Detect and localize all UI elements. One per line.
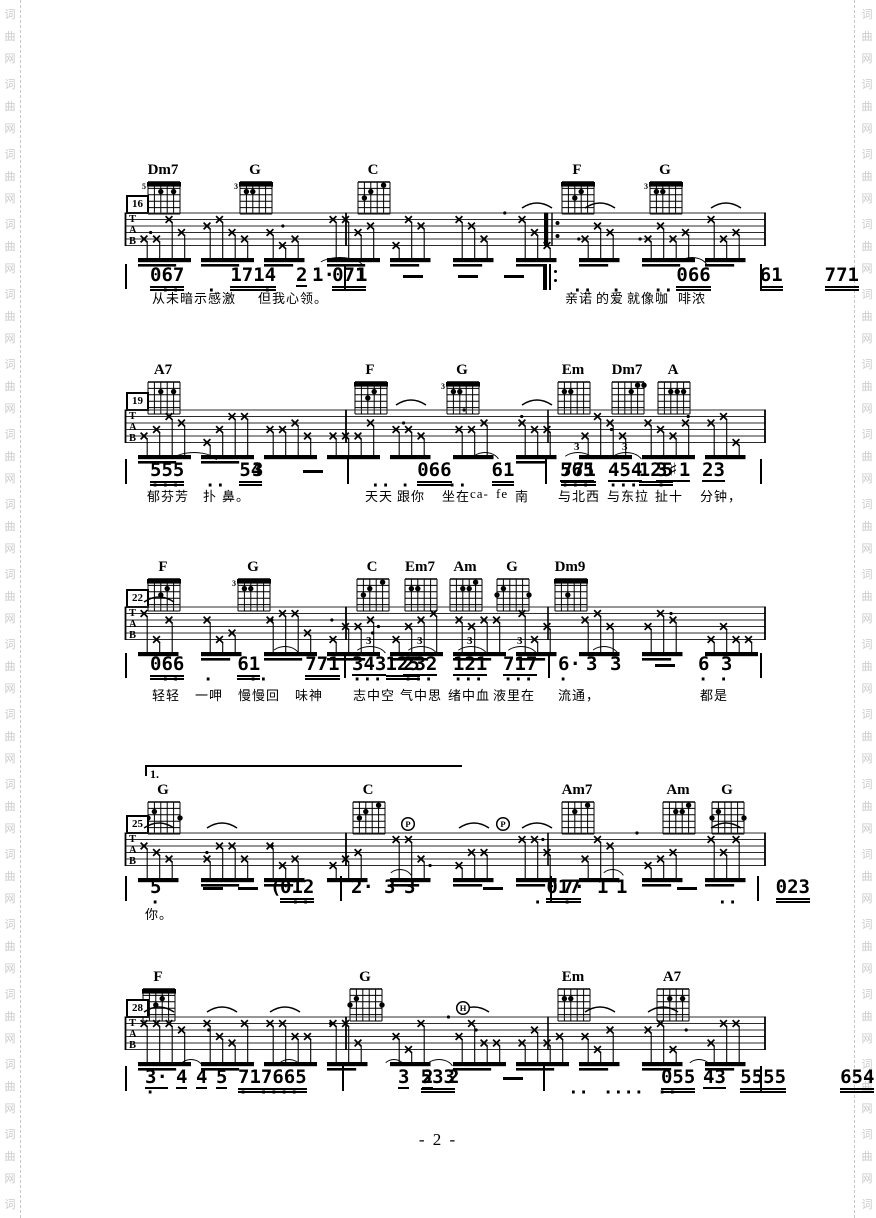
watermark-text: 网 <box>3 750 17 766</box>
melody-note: 023 <box>776 876 810 900</box>
watermark-text: 曲 <box>860 798 874 814</box>
lyric-run: 一呷 <box>195 685 223 704</box>
lyric-run: 跟你 <box>397 486 425 505</box>
repeat-dot <box>554 270 557 273</box>
repeat-dot <box>554 279 557 282</box>
melody-dash <box>203 887 223 890</box>
watermark-text: 曲 <box>3 1078 17 1094</box>
chord-label: Em <box>550 362 596 379</box>
watermark-text: 网 <box>860 260 874 276</box>
chord-label: A <box>650 362 696 379</box>
watermark-text: 词 <box>3 846 17 862</box>
lyric-run: 扯十 <box>655 486 683 505</box>
chord-label: G <box>439 362 485 379</box>
watermark-text: 曲 <box>860 98 874 114</box>
lyric-run: 亲诺 <box>565 288 593 307</box>
watermark-text: 词 <box>860 76 874 92</box>
lyric-run: 液里在 <box>493 685 535 704</box>
repeat-sign <box>543 264 559 290</box>
chord-label: G <box>489 559 535 576</box>
svg-text:A: A <box>129 619 137 630</box>
melody-barline <box>347 459 349 484</box>
melody-barline <box>548 653 550 678</box>
watermark-text: 曲 <box>3 238 17 254</box>
watermark-text: 网 <box>860 750 874 766</box>
melody-octave-dots: ·· <box>248 675 268 685</box>
watermark-text: 网 <box>860 400 874 416</box>
lyric-run: 的爱 <box>596 288 624 307</box>
watermark-text: 网 <box>3 1170 17 1186</box>
watermark-text: 网 <box>3 400 17 416</box>
sheet-music-page: 词曲网词曲网词曲网词曲网词曲网词曲网词曲网词曲网词曲网词曲网词曲网词曲网词曲网词… <box>0 0 876 1218</box>
watermark-text: 网 <box>3 960 17 976</box>
watermark-text: 词 <box>3 706 17 722</box>
chord-label: G <box>140 782 186 799</box>
volta-label: 1. <box>150 767 159 782</box>
watermark-text: 网 <box>3 470 17 486</box>
watermark-text: 曲 <box>3 518 17 534</box>
svg-text:B: B <box>129 236 136 247</box>
chord-label: Dm7 <box>604 362 650 379</box>
chord-label: G <box>642 162 688 179</box>
tab-staff-graphic: TAB <box>124 195 772 289</box>
watermark-text: 曲 <box>860 658 874 674</box>
lyric-run: 分钟， <box>700 486 742 505</box>
melody-barline <box>125 459 127 484</box>
volta-bracket: 1. <box>145 765 462 776</box>
watermark-text: 词 <box>3 776 17 792</box>
watermark-text: 词 <box>860 356 874 372</box>
lyric-run: 你。 <box>145 904 173 923</box>
watermark-text: 网 <box>860 190 874 206</box>
tab-staff-graphic: TAB <box>124 589 772 683</box>
watermark-text: 网 <box>3 1030 17 1046</box>
watermark-text: 曲 <box>860 378 874 394</box>
melody-dash <box>483 887 503 890</box>
watermark-text: 曲 <box>860 238 874 254</box>
chord-label: G <box>230 559 276 576</box>
watermark-text: 网 <box>3 50 17 66</box>
watermark-text: 词 <box>860 986 874 1002</box>
melody-octave-dots: ·· <box>707 898 738 908</box>
lyric-run: 与东拉 <box>607 486 649 505</box>
watermark-text: 词 <box>860 216 874 232</box>
svg-text:A: A <box>129 225 137 236</box>
chord-label: Em7 <box>397 559 443 576</box>
lyric-run: 鼻。 <box>222 486 250 505</box>
svg-text:B: B <box>129 856 136 867</box>
melody-octave-dots: · <box>562 898 572 908</box>
lyric-run: 郁芬芳 <box>147 486 189 505</box>
melody-barline <box>760 1066 762 1091</box>
watermark-text: 网 <box>3 260 17 276</box>
chord-label: G <box>704 782 750 799</box>
watermark-text: 词 <box>3 426 17 442</box>
watermark-text: 曲 <box>3 798 17 814</box>
melody-octave-dots: · ···· <box>238 1088 299 1098</box>
watermark-text: 曲 <box>3 728 17 744</box>
melody-barline <box>125 876 127 901</box>
chord-label: Am <box>655 782 701 799</box>
lyric-run: 志中空 <box>353 685 395 704</box>
watermark-text: 网 <box>3 820 17 836</box>
watermark-text: 网 <box>3 540 17 556</box>
lyric-run: 啡浓 <box>678 288 706 307</box>
lyric-run: 气中思 <box>400 685 442 704</box>
watermark-text: 网 <box>860 1170 874 1186</box>
watermark-text: 曲 <box>860 868 874 884</box>
melody-note: 3 <box>404 877 415 897</box>
watermark-right-dashed-line <box>854 0 855 1218</box>
svg-text:P: P <box>405 819 410 829</box>
lyric-run: 南 <box>515 486 529 505</box>
melody-barline <box>545 459 547 484</box>
melody-note: 654 <box>840 1066 874 1090</box>
watermark-text: 词 <box>860 496 874 512</box>
melody-barline <box>760 653 762 678</box>
melody-barline <box>342 1066 344 1091</box>
watermark-text: 网 <box>3 610 17 626</box>
melody-note: 771 <box>305 653 339 677</box>
melody-barline <box>125 1066 127 1091</box>
chord-label: F <box>347 362 393 379</box>
tab-staff-graphic: TABPP <box>124 815 772 909</box>
melody-barline <box>125 264 127 289</box>
watermark-text: 网 <box>860 120 874 136</box>
triplet-number: 3 <box>366 635 372 647</box>
chord-label: Dm9 <box>547 559 593 576</box>
triplet-number: 3 <box>417 635 423 647</box>
melody-note: 4 <box>196 1067 207 1089</box>
watermark-text: 曲 <box>860 448 874 464</box>
melody-note: 771 <box>825 264 859 288</box>
chord-label: Em <box>550 969 596 986</box>
melody-note: 2· <box>351 877 374 897</box>
tab-staff: TABPP <box>124 815 772 909</box>
watermark-text: 词 <box>860 706 874 722</box>
melody-dash <box>403 275 423 278</box>
melody-octave-dots: · <box>558 675 568 685</box>
svg-text:T: T <box>129 608 136 619</box>
svg-text:T: T <box>129 411 136 422</box>
svg-text:T: T <box>129 1018 136 1029</box>
melody-barline <box>340 876 342 901</box>
melody-note: 2 <box>448 1067 459 1087</box>
watermark-text: 词 <box>860 6 874 22</box>
chord-label: C <box>350 162 396 179</box>
watermark-text: 网 <box>860 680 874 696</box>
melody-note: 2 <box>422 1067 433 1089</box>
melody-barline <box>760 459 762 484</box>
watermark-left-dashed-line <box>20 0 21 1218</box>
lyric-run: 慢慢回 <box>238 685 280 704</box>
watermark-text: 网 <box>3 190 17 206</box>
melody-dash <box>503 1077 523 1080</box>
watermark-text: 曲 <box>860 168 874 184</box>
lyric-run: 就像咖 <box>627 288 669 307</box>
melody-octave-dots: ·· <box>657 1088 677 1098</box>
watermark-text: 网 <box>3 680 17 696</box>
melody-dash <box>655 664 675 667</box>
watermark-text: 网 <box>860 890 874 906</box>
lyric-run: 坐在 <box>442 486 470 505</box>
triplet-number: 3 <box>517 635 523 647</box>
watermark-text: 词 <box>3 566 17 582</box>
melody-dash <box>303 470 323 473</box>
watermark-text: 词 <box>3 916 17 932</box>
chord-label: Am7 <box>554 782 600 799</box>
watermark-text: 曲 <box>3 98 17 114</box>
watermark-text: 词 <box>3 286 17 302</box>
watermark-text: 词 <box>3 356 17 372</box>
watermark-text: 词 <box>860 916 874 932</box>
watermark-text: 曲 <box>3 308 17 324</box>
melody-octave-dots: ··· <box>352 675 383 685</box>
svg-text:B: B <box>129 433 136 444</box>
melody-note: 1 <box>356 265 367 285</box>
watermark-text: 词 <box>860 846 874 862</box>
lyric-run: 但我心领。 <box>258 288 328 307</box>
melody-note: 5 <box>216 1067 227 1089</box>
chord-label: G <box>232 162 278 179</box>
watermark-text: 词 <box>3 76 17 92</box>
chord-label: C <box>349 559 395 576</box>
watermark-text: 词 <box>3 986 17 1002</box>
lyric-run: 轻轻 <box>152 685 180 704</box>
melody-octave-dots: ·· <box>558 1088 589 1098</box>
watermark-text: 曲 <box>860 308 874 324</box>
svg-text:A: A <box>129 422 137 433</box>
watermark-text: 词 <box>3 1056 17 1072</box>
chord-label: F <box>554 162 600 179</box>
lyric-run: 天天 <box>365 486 393 505</box>
svg-text:3: 3 <box>232 579 236 588</box>
lyric-run: 扑 <box>203 486 217 505</box>
chord-label: F <box>135 969 181 986</box>
lyric-run: 从未暗示感激 <box>152 288 236 307</box>
melody-dash <box>504 275 524 278</box>
melody-octave-dots: ···· <box>603 1088 644 1098</box>
melody-dash <box>458 275 478 278</box>
triplet-number: 3 <box>574 441 580 453</box>
lyric-run: 都是 <box>700 685 728 704</box>
watermark-text: 曲 <box>3 588 17 604</box>
melody-note: 5555 <box>740 1066 786 1090</box>
watermark-text: 词 <box>860 1196 874 1212</box>
melody-note: 4 <box>176 1067 187 1089</box>
watermark-text: 曲 <box>3 868 17 884</box>
svg-text:P: P <box>500 819 505 829</box>
watermark-text: 曲 <box>860 28 874 44</box>
watermark-text: 曲 <box>3 658 17 674</box>
lyric-run: ca- <box>470 486 489 502</box>
melody-note: 2 <box>296 265 307 287</box>
watermark-text: 网 <box>3 1100 17 1116</box>
chord-label: C <box>345 782 391 799</box>
svg-text:T: T <box>129 834 136 845</box>
melody-barline <box>550 876 552 901</box>
watermark-text: 曲 <box>3 168 17 184</box>
repeat-thin-bar <box>549 264 551 290</box>
svg-text:3: 3 <box>441 382 445 391</box>
melody-octave-dots: · <box>145 1088 155 1098</box>
melody-octave-dots: · <box>512 898 543 908</box>
watermark-text: 网 <box>860 50 874 66</box>
svg-text:B: B <box>129 1040 136 1051</box>
chord-label: G <box>342 969 388 986</box>
watermark-text: 网 <box>860 330 874 346</box>
svg-text:3: 3 <box>234 182 238 191</box>
watermark-text: 曲 <box>860 1008 874 1024</box>
melody-octave-dots: ··· <box>453 675 484 685</box>
repeat-thick-bar <box>543 264 547 290</box>
melody-note: 1· <box>312 265 335 285</box>
melody-barline <box>760 264 762 289</box>
watermark-text: 曲 <box>3 1008 17 1024</box>
watermark-text: 词 <box>3 1196 17 1212</box>
watermark-text: 词 <box>860 636 874 652</box>
watermark-text: 网 <box>860 470 874 486</box>
watermark-text: 词 <box>860 566 874 582</box>
watermark-text: 曲 <box>3 1148 17 1164</box>
watermark-text: 曲 <box>860 588 874 604</box>
lyric-run: fe <box>496 486 508 502</box>
melody-barline <box>543 1066 545 1091</box>
watermark-text: 网 <box>860 540 874 556</box>
melody-dash <box>677 887 697 890</box>
triplet-number: 3 <box>467 635 473 647</box>
lyric-run: 味神 <box>295 685 323 704</box>
svg-text:5: 5 <box>142 182 146 191</box>
watermark-text: 曲 <box>3 448 17 464</box>
watermark-text: 词 <box>860 286 874 302</box>
melody-note: 3 <box>384 877 395 897</box>
watermark-text: 网 <box>860 1100 874 1116</box>
svg-text:T: T <box>129 214 136 225</box>
watermark-text: 词 <box>860 426 874 442</box>
chord-label: F <box>140 559 186 576</box>
watermark-text: 词 <box>3 636 17 652</box>
lyric-run: 与北西 <box>558 486 600 505</box>
melody-octave-dots: ··· <box>503 675 534 685</box>
watermark-text: 曲 <box>3 938 17 954</box>
watermark-text: 词 <box>860 146 874 162</box>
tab-staff: TAB <box>124 195 772 289</box>
melody-note: 3 <box>610 654 621 674</box>
watermark-text: 曲 <box>860 728 874 744</box>
watermark-text: 网 <box>3 120 17 136</box>
watermark-text: 网 <box>3 330 17 346</box>
svg-text:A: A <box>129 1029 137 1040</box>
watermark-text: 词 <box>3 216 17 232</box>
watermark-text: 网 <box>860 960 874 976</box>
chord-label: A7 <box>140 362 186 379</box>
melody-note: 3 <box>586 654 597 674</box>
melody-note: 1 <box>597 877 608 897</box>
melody-barline <box>125 653 127 678</box>
melody-barline <box>344 653 346 678</box>
watermark-text: 曲 <box>860 518 874 534</box>
melody-barline <box>757 876 759 901</box>
watermark-text: 网 <box>860 610 874 626</box>
chord-label: Dm7 <box>140 162 186 179</box>
watermark-text: 曲 <box>860 1148 874 1164</box>
watermark-text: 词 <box>3 496 17 512</box>
melody-octave-dots: · <box>203 675 213 685</box>
melody-note: 1 <box>616 877 627 897</box>
melody-octave-dots: ··· <box>403 675 434 685</box>
watermark-text: 词 <box>860 776 874 792</box>
melody-note: 3 <box>252 460 263 480</box>
lyric-run: 流通， <box>558 685 600 704</box>
svg-text:3: 3 <box>644 182 648 191</box>
melody-note: 43 <box>703 1067 726 1089</box>
lyric-run: 绪中血 <box>448 685 490 704</box>
watermark-text: 曲 <box>860 938 874 954</box>
melody-note: 23 <box>702 460 725 482</box>
svg-text:A: A <box>129 845 137 856</box>
svg-text:B: B <box>129 630 136 641</box>
melody-octave-dots: ·· <box>280 898 311 908</box>
page-number: - 2 - <box>0 1130 876 1150</box>
chord-label: Am <box>442 559 488 576</box>
watermark-text: 曲 <box>3 28 17 44</box>
watermark-text: 曲 <box>3 378 17 394</box>
watermark-text: 词 <box>3 146 17 162</box>
watermark-text: 网 <box>860 1030 874 1046</box>
tab-system-5: FGEmA728TABH3··445717665· ····533322055 … <box>0 0 217 21</box>
watermark-text: 网 <box>860 820 874 836</box>
melody-dash <box>238 887 258 890</box>
melody-octave-dots: ·· <box>150 675 181 685</box>
svg-text:H: H <box>460 1003 467 1013</box>
watermark-text: 网 <box>3 890 17 906</box>
melody-note: 3 <box>398 1067 409 1089</box>
melody-octave-dots: · · <box>698 675 729 685</box>
chord-label: A7 <box>649 969 695 986</box>
triplet-number: 3 <box>622 441 628 453</box>
tab-staff: TAB <box>124 589 772 683</box>
melody-note: 61 <box>760 264 783 288</box>
